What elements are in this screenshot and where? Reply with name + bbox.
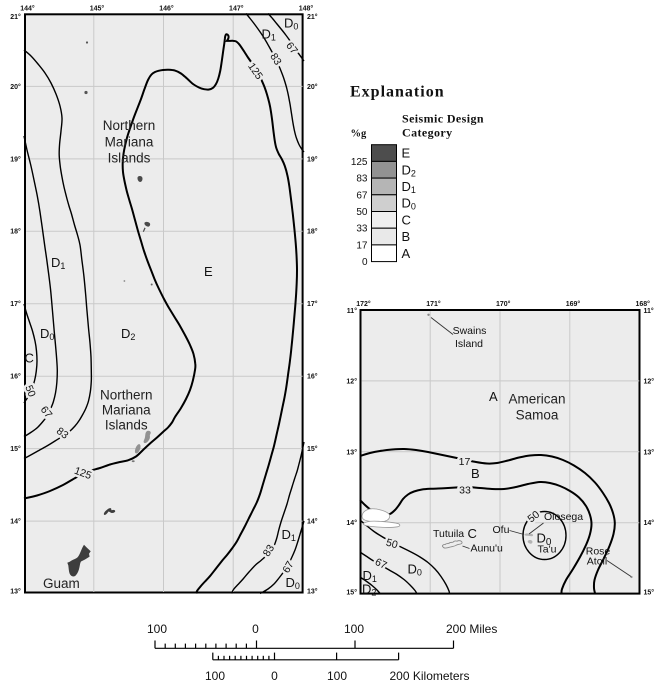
svg-text:11°: 11°: [644, 307, 654, 315]
svg-text:16°: 16°: [10, 373, 21, 381]
svg-text:A: A: [489, 389, 498, 404]
svg-text:D2: D2: [402, 162, 416, 178]
svg-text:145°: 145°: [90, 5, 105, 13]
svg-text:Aunu'u: Aunu'u: [471, 543, 504, 555]
svg-text:Swains: Swains: [453, 325, 487, 337]
svg-text:Samoa: Samoa: [516, 408, 559, 423]
svg-text:17°: 17°: [10, 300, 21, 308]
svg-text:D1: D1: [402, 179, 416, 195]
svg-text:E: E: [204, 264, 213, 279]
svg-text:Islands: Islands: [105, 418, 148, 433]
svg-text:13°: 13°: [346, 448, 357, 456]
svg-text:50: 50: [356, 207, 368, 218]
svg-text:17°: 17°: [307, 300, 318, 308]
svg-text:B: B: [471, 466, 480, 481]
svg-text:Ta'u: Ta'u: [538, 544, 557, 556]
svg-text:100: 100: [327, 669, 347, 683]
svg-text:15°: 15°: [644, 589, 655, 597]
svg-text:A: A: [402, 246, 411, 261]
svg-text:17: 17: [356, 240, 368, 251]
svg-text:C: C: [402, 212, 411, 227]
svg-text:144°: 144°: [20, 5, 35, 13]
svg-text:125: 125: [351, 157, 368, 168]
svg-text:11°: 11°: [347, 307, 357, 315]
svg-text:17: 17: [459, 456, 471, 468]
svg-text:Atoll: Atoll: [587, 556, 607, 568]
svg-text:20°: 20°: [10, 83, 21, 91]
svg-text:Explanation: Explanation: [350, 84, 445, 101]
svg-text:C: C: [468, 526, 477, 541]
svg-text:21°: 21°: [307, 13, 318, 21]
svg-text:19°: 19°: [10, 155, 21, 163]
svg-text:169°: 169°: [566, 300, 581, 308]
svg-text:13°: 13°: [644, 448, 655, 456]
svg-text:83: 83: [356, 174, 368, 185]
svg-text:Guam: Guam: [43, 576, 80, 591]
svg-text:American: American: [508, 392, 565, 407]
svg-text:21°: 21°: [10, 13, 21, 21]
svg-text:14°: 14°: [307, 517, 318, 525]
svg-text:Northern: Northern: [103, 118, 156, 133]
svg-text:14°: 14°: [10, 517, 21, 525]
svg-text:0: 0: [362, 257, 368, 268]
svg-text:15°: 15°: [346, 589, 357, 597]
svg-text:E: E: [402, 146, 411, 161]
svg-text:%g: %g: [351, 129, 368, 140]
svg-text:33: 33: [459, 485, 471, 497]
svg-text:13°: 13°: [10, 588, 21, 596]
svg-text:15°: 15°: [10, 445, 21, 453]
svg-text:Island: Island: [455, 338, 483, 350]
svg-text:Category: Category: [402, 126, 453, 140]
svg-text:170°: 170°: [496, 300, 511, 308]
svg-text:Mariana: Mariana: [105, 134, 154, 149]
svg-text:19°: 19°: [307, 155, 318, 163]
svg-text:12°: 12°: [346, 377, 357, 385]
svg-text:14°: 14°: [346, 519, 357, 527]
svg-text:Seismic Design: Seismic Design: [402, 112, 484, 126]
svg-text:100: 100: [147, 622, 167, 636]
svg-text:146°: 146°: [159, 5, 174, 13]
svg-text:D0: D0: [402, 196, 416, 212]
svg-text:18°: 18°: [307, 228, 318, 236]
svg-text:C: C: [25, 351, 34, 366]
svg-text:16°: 16°: [307, 373, 318, 381]
svg-text:Northern: Northern: [100, 387, 153, 402]
svg-text:0: 0: [252, 622, 259, 636]
svg-text:200 Kilometers: 200 Kilometers: [390, 669, 470, 683]
svg-text:Tutuila: Tutuila: [433, 528, 464, 540]
svg-text:14°: 14°: [644, 519, 655, 527]
svg-text:148°: 148°: [299, 5, 314, 13]
svg-text:B: B: [402, 229, 411, 244]
svg-text:100: 100: [205, 669, 225, 683]
svg-text:Ofu: Ofu: [493, 524, 510, 536]
svg-text:Olosega: Olosega: [544, 511, 583, 523]
svg-text:172°: 172°: [356, 300, 371, 308]
svg-text:13°: 13°: [307, 588, 318, 596]
svg-text:0: 0: [271, 669, 278, 683]
svg-text:18°: 18°: [10, 228, 21, 236]
svg-text:171°: 171°: [426, 300, 441, 308]
svg-text:20°: 20°: [307, 83, 318, 91]
svg-text:100: 100: [344, 622, 364, 636]
svg-text:15°: 15°: [307, 445, 318, 453]
svg-text:Mariana: Mariana: [102, 403, 151, 418]
svg-text:147°: 147°: [229, 5, 244, 13]
svg-text:12°: 12°: [644, 377, 655, 385]
svg-text:168°: 168°: [635, 300, 650, 308]
svg-text:33: 33: [356, 224, 368, 235]
svg-text:200 Miles: 200 Miles: [446, 622, 497, 636]
svg-text:67: 67: [356, 190, 368, 201]
svg-text:Islands: Islands: [108, 151, 151, 166]
